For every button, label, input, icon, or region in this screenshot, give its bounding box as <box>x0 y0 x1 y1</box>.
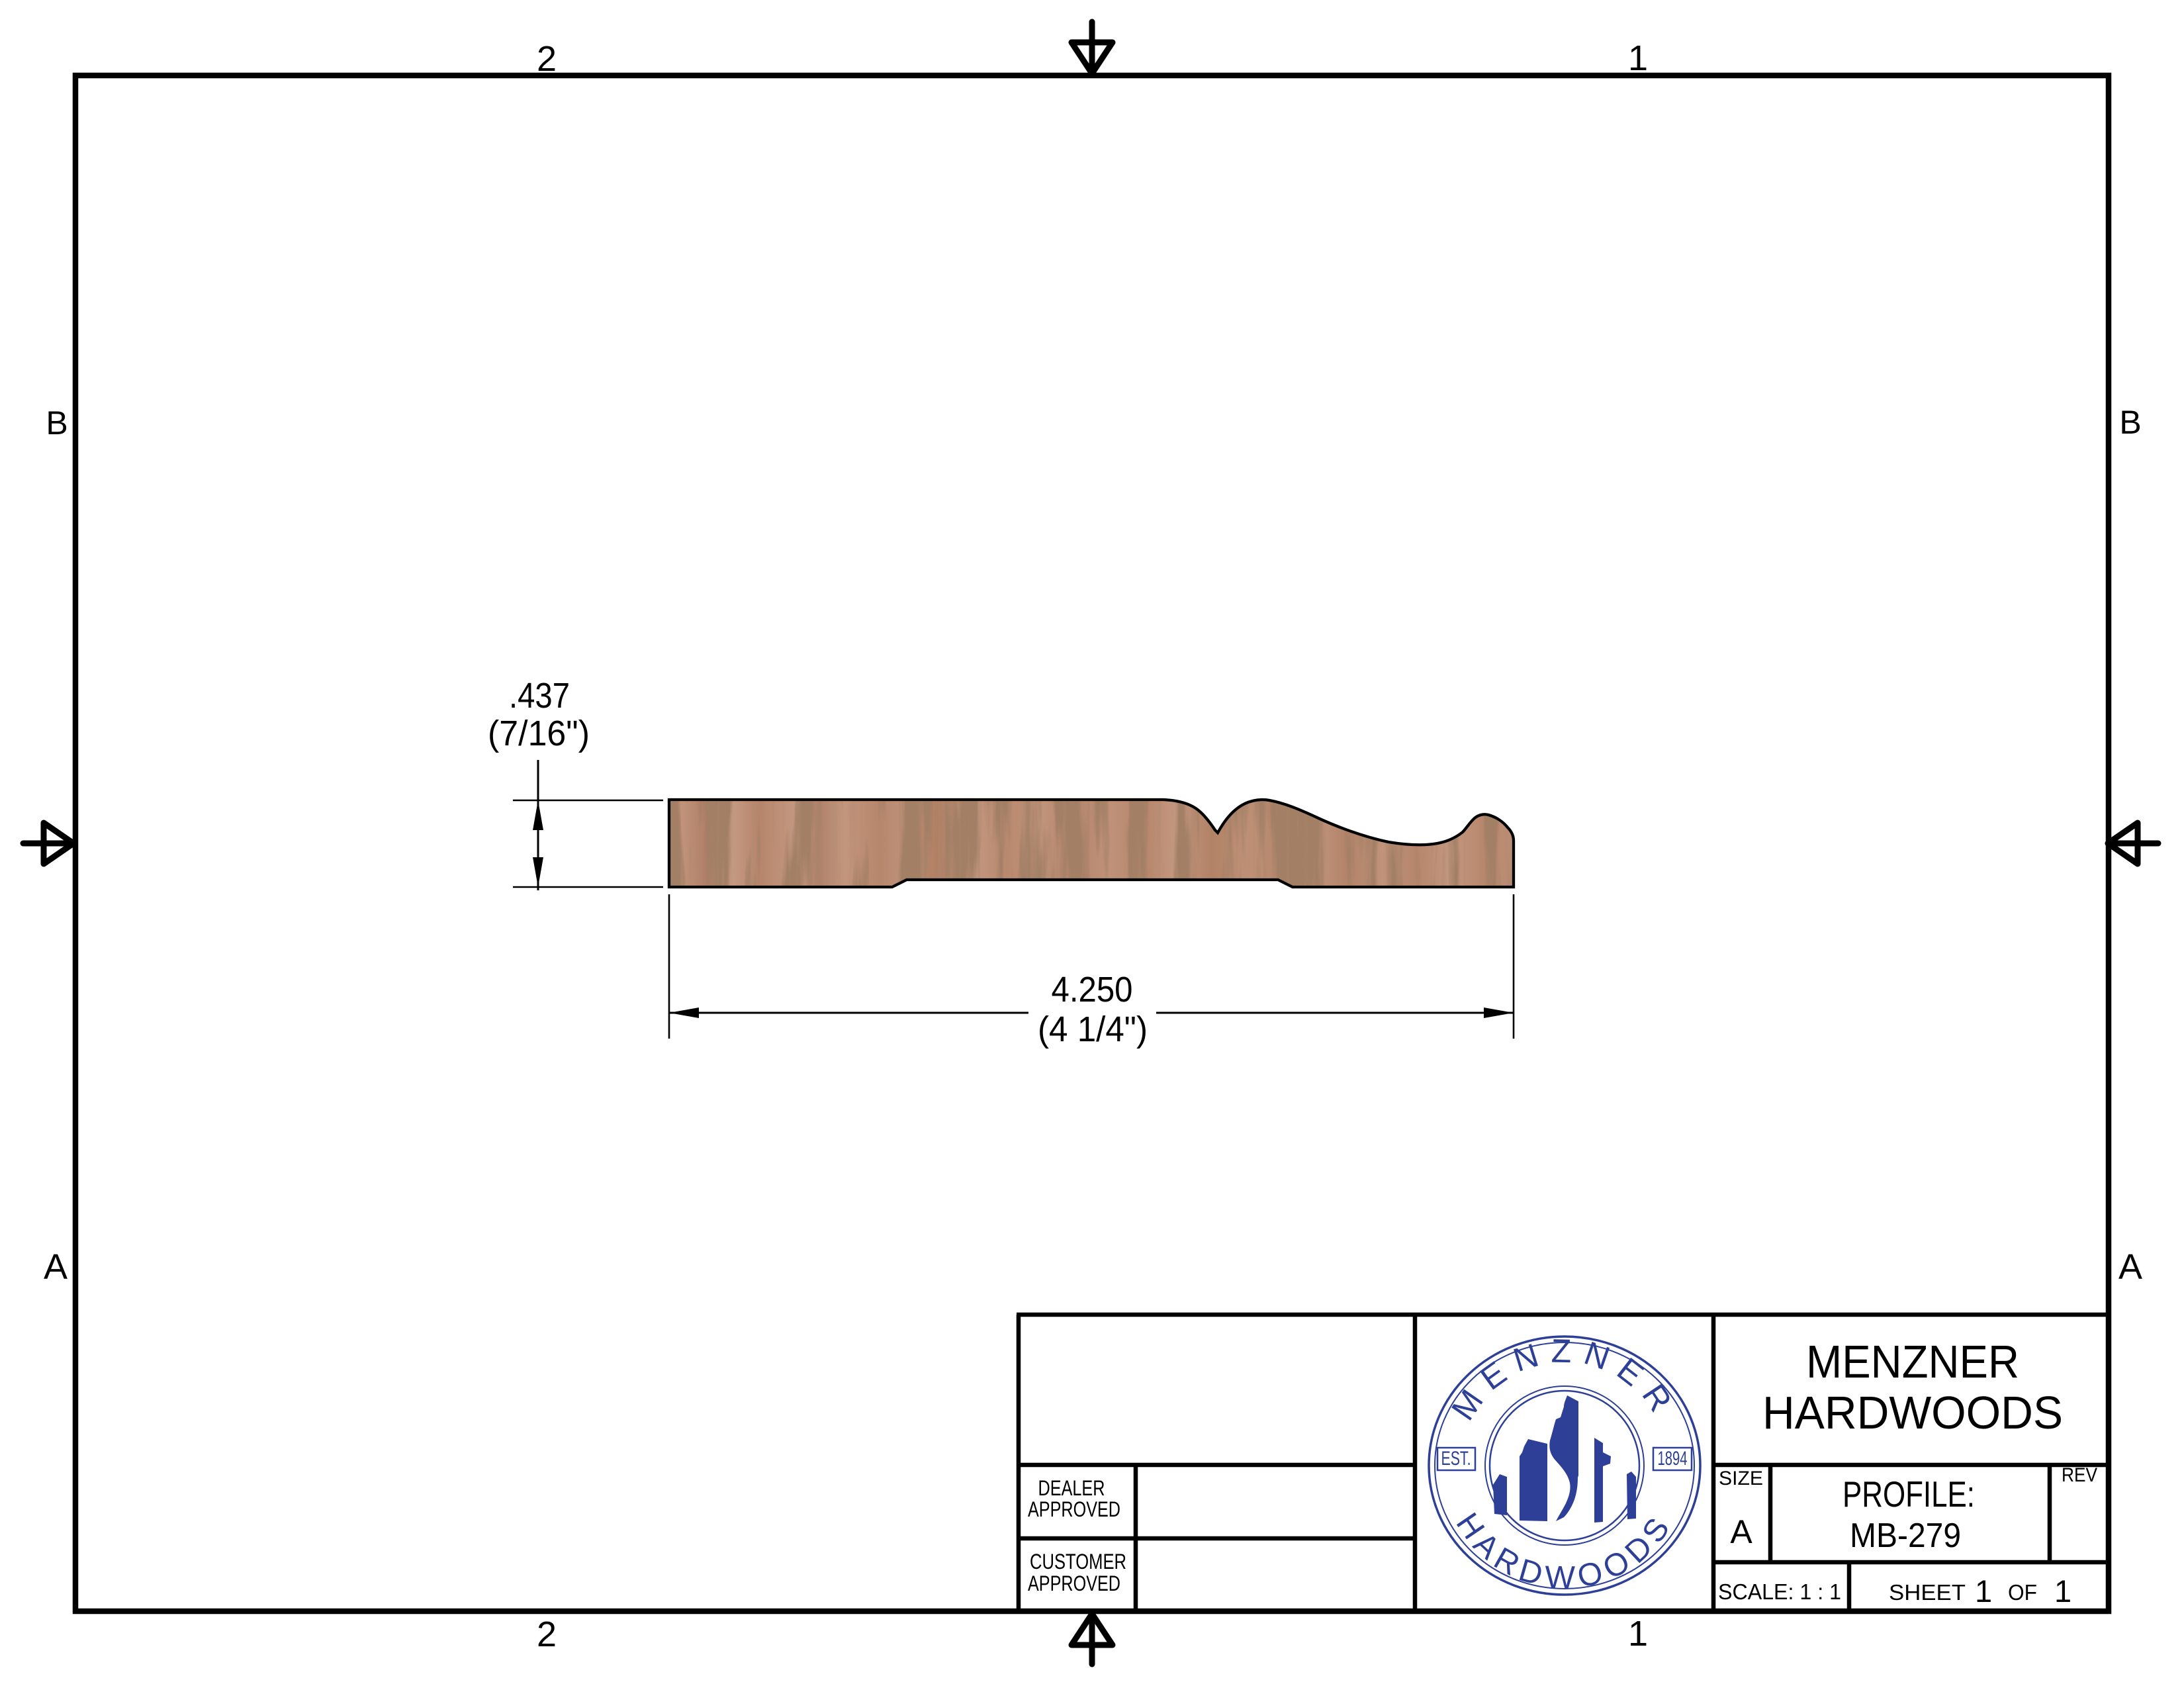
svg-text:2: 2 <box>537 1615 557 1654</box>
svg-text:A: A <box>44 1247 68 1287</box>
svg-text:APPROVED: APPROVED <box>1028 1497 1120 1521</box>
svg-text:MB-279: MB-279 <box>1850 1517 1961 1555</box>
svg-text:OF: OF <box>2008 1580 2037 1605</box>
svg-text:APPROVED: APPROVED <box>1028 1571 1120 1595</box>
svg-text:SIZE: SIZE <box>1719 1468 1763 1489</box>
svg-text:MENZNER: MENZNER <box>1806 1336 2019 1387</box>
svg-text:SCALE: 1 : 1: SCALE: 1 : 1 <box>1718 1579 1841 1604</box>
svg-text:HARDWOODS: HARDWOODS <box>1762 1387 2063 1438</box>
svg-text:.437: .437 <box>509 676 570 716</box>
svg-text:A: A <box>1730 1513 1752 1550</box>
svg-text:1: 1 <box>1628 38 1648 78</box>
svg-text:1894: 1894 <box>1658 1448 1688 1470</box>
svg-text:1: 1 <box>1628 1614 1648 1654</box>
svg-text:2: 2 <box>537 39 557 79</box>
svg-text:1: 1 <box>1975 1573 1992 1609</box>
svg-text:SHEET: SHEET <box>1889 1580 1966 1605</box>
svg-text:PROFILE:: PROFILE: <box>1843 1474 1975 1515</box>
svg-text:(7/16"): (7/16") <box>488 714 590 753</box>
svg-text:A: A <box>2118 1247 2142 1287</box>
svg-text:EST.: EST. <box>1441 1448 1471 1470</box>
svg-text:(4 1/4"): (4 1/4") <box>1038 1009 1148 1049</box>
svg-text:4.250: 4.250 <box>1052 970 1133 1009</box>
svg-text:B: B <box>46 404 68 442</box>
svg-text:DEALER: DEALER <box>1038 1476 1105 1500</box>
svg-text:REV: REV <box>2062 1464 2097 1486</box>
svg-text:B: B <box>2119 404 2141 441</box>
svg-text:CUSTOMER: CUSTOMER <box>1030 1550 1126 1573</box>
svg-text:1: 1 <box>2054 1573 2071 1609</box>
